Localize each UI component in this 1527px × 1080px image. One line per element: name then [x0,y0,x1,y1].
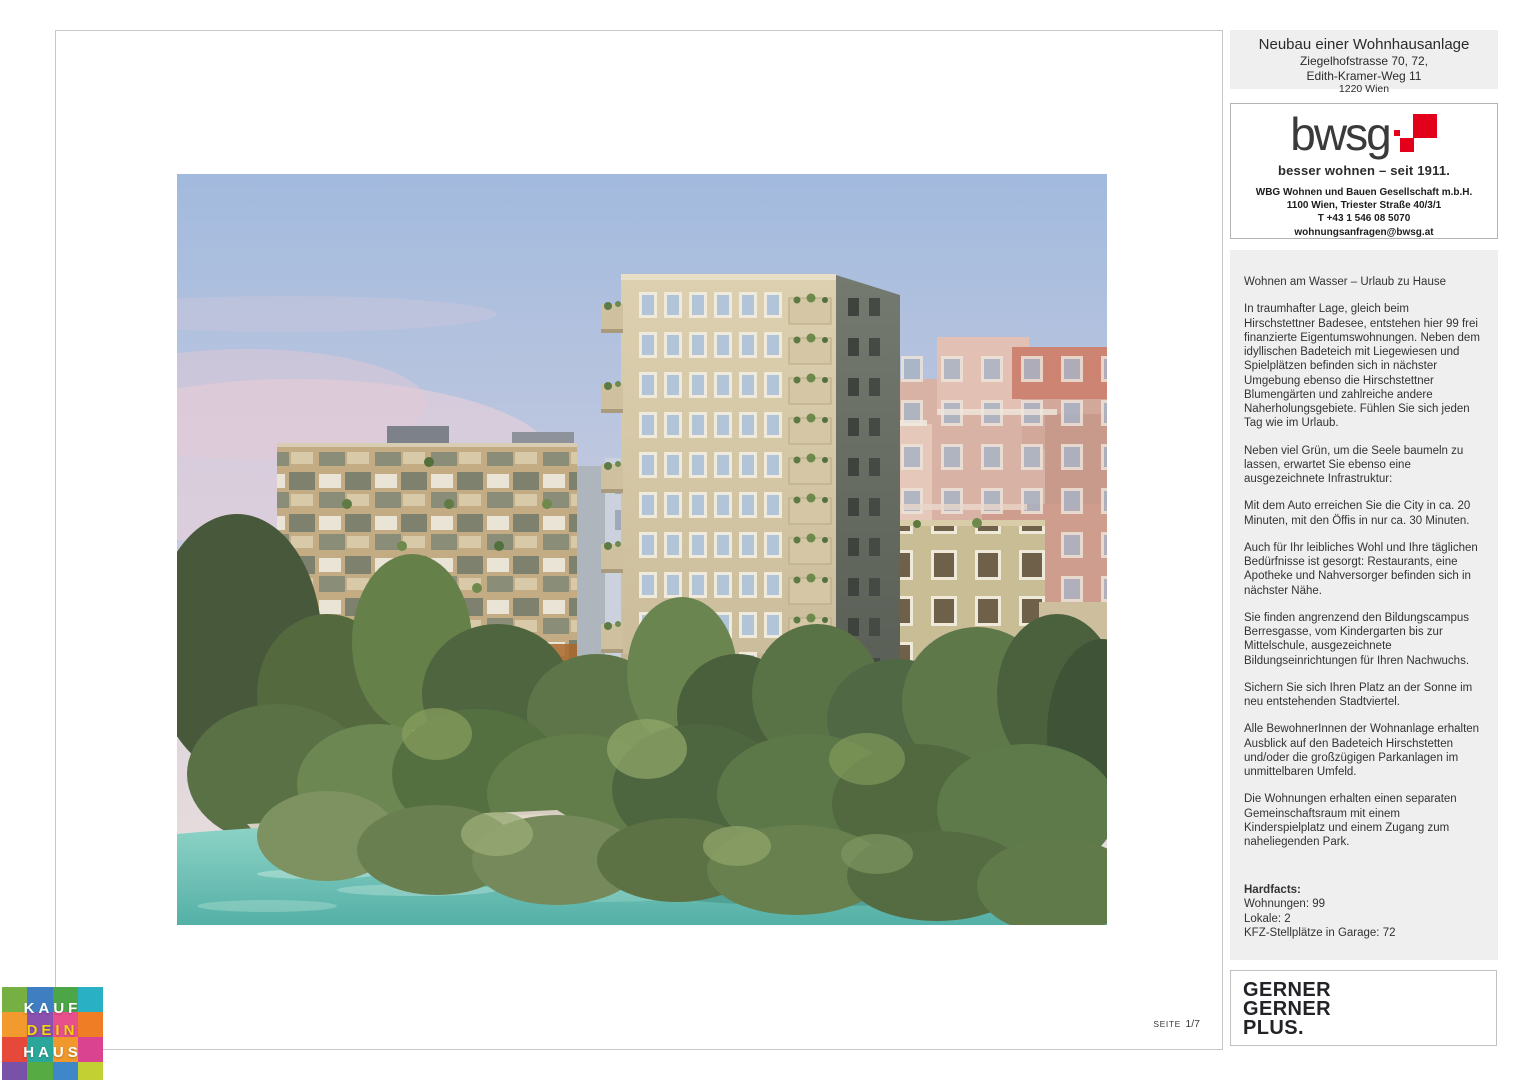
project-address-line1: Ziegelhofstrasse 70, 72, [1230,54,1498,69]
description-headline: Wohnen am Wasser – Urlaub zu Hause [1244,275,1482,289]
hardfacts-item: Lokale: 2 [1244,912,1484,926]
building-rendering-image [177,174,1107,925]
description-paragraph: Sichern Sie sich Ihren Platz an der Sonn… [1244,681,1482,710]
developer-email: wohnungsanfragen@bwsg.at [1231,226,1497,239]
bwsg-square-small [1394,130,1400,136]
bwsg-square-large [1413,114,1437,138]
kaufdeinhaus-text: KAUF DEIN HAUS [2,998,103,1064]
kaufdeinhaus-line: HAUS [2,1042,103,1064]
description-paragraph: Die Wohnungen erhalten einen separaten G… [1244,792,1482,849]
architect-logo-line: PLUS. [1243,1019,1496,1038]
rendering-scene [177,174,1107,925]
hardfacts-block: Hardfacts: Wohnungen: 99 Lokale: 2 KFZ-S… [1244,883,1484,940]
kaufdeinhaus-tile [78,1062,103,1080]
bwsg-tagline: besser wohnen – seit 1911. [1231,163,1497,178]
architect-logo-box: GERNER GERNER PLUS. [1230,970,1497,1046]
kaufdeinhaus-line: DEIN [2,1020,103,1042]
page-number-label: SEITE [1153,1019,1181,1029]
hardfacts-item: KFZ-Stellplätze in Garage: 72 [1244,926,1484,940]
hardfacts-item: Wohnungen: 99 [1244,897,1484,911]
page-number: SEITE 1/7 [1090,1014,1200,1032]
description-paragraph: Mit dem Auto erreichen Sie die City in c… [1244,499,1482,528]
project-city: 1220 Wien [1230,83,1498,97]
document-page: Neubau einer Wohnhausanlage Ziegelhofstr… [0,0,1527,1080]
description-panel: Wohnen am Wasser – Urlaub zu Hause In tr… [1230,250,1498,960]
developer-address: 1100 Wien, Triester Straße 40/3/1 [1231,199,1497,212]
project-title: Neubau einer Wohnhausanlage [1230,36,1498,54]
kaufdeinhaus-tile [2,1062,27,1080]
bwsg-squares-icon [1394,113,1438,159]
kaufdeinhaus-tile [53,1062,78,1080]
description-paragraph: In traumhafter Lage, gleich beim Hirschs… [1244,302,1482,430]
developer-phone: T +43 1 546 08 5070 [1231,212,1497,225]
developer-logo-box: bwsg besser wohnen – seit 1911. WBG Wohn… [1230,103,1498,239]
developer-company: WBG Wohnen und Bauen Gesellschaft m.b.H. [1231,186,1497,199]
project-header: Neubau einer Wohnhausanlage Ziegelhofstr… [1230,30,1498,89]
description-paragraph: Alle BewohnerInnen der Wohnanlage erhalt… [1244,722,1482,779]
description-paragraph: Neben viel Grün, um die Seele baumeln zu… [1244,444,1482,487]
description-paragraph: Auch für Ihr leibliches Wohl und Ihre tä… [1244,541,1482,598]
hardfacts-label: Hardfacts: [1244,883,1484,897]
project-address-line2: Edith-Kramer-Weg 11 [1230,69,1498,84]
page-number-value: 1/7 [1185,1018,1200,1030]
kaufdeinhaus-tile [27,1062,52,1080]
kaufdeinhaus-line: KAUF [2,998,103,1020]
developer-contact: WBG Wohnen und Bauen Gesellschaft m.b.H.… [1231,186,1497,239]
bwsg-wordmark: bwsg [1290,113,1389,157]
kaufdeinhaus-logo: KAUF DEIN HAUS [2,987,103,1080]
bwsg-square-medium [1400,138,1414,152]
description-paragraph: Sie finden angrenzend den Bildungscampus… [1244,611,1482,668]
